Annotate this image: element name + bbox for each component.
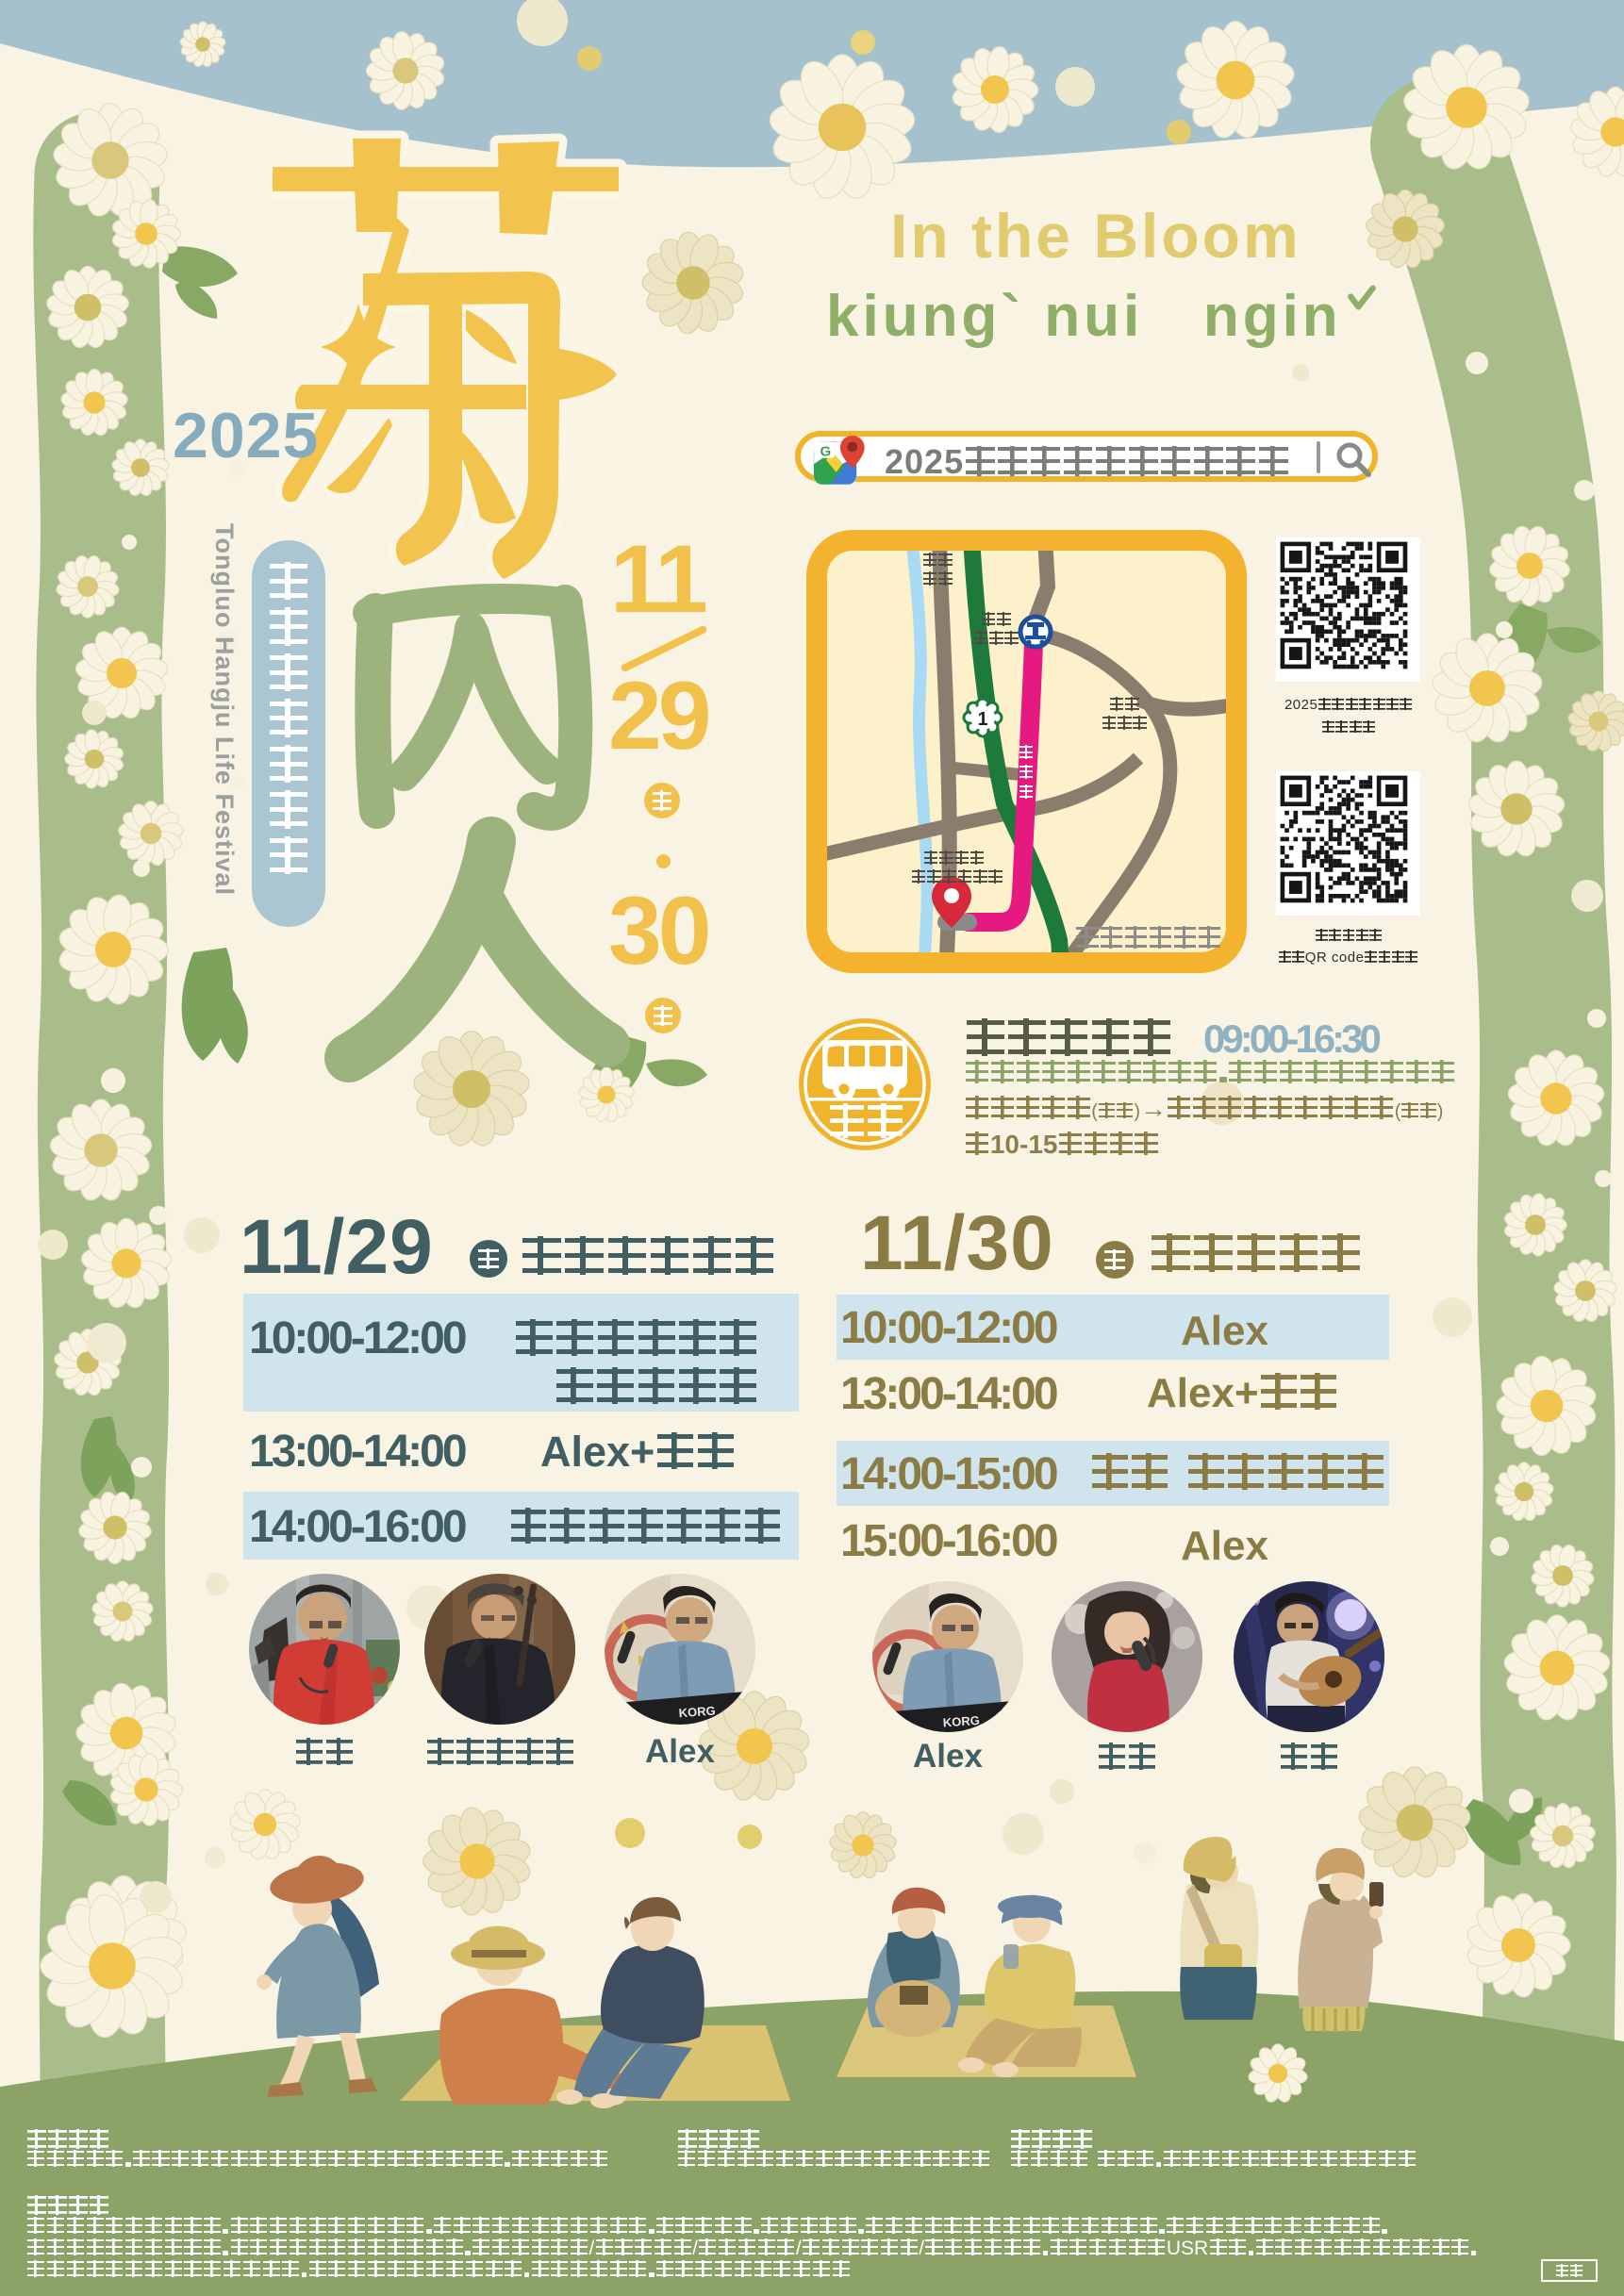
- svg-text:1: 1: [977, 709, 987, 730]
- svg-text:KORG: KORG: [678, 1704, 716, 1721]
- svg-text:G: G: [820, 444, 832, 460]
- svg-text:KORG: KORG: [942, 1713, 980, 1730]
